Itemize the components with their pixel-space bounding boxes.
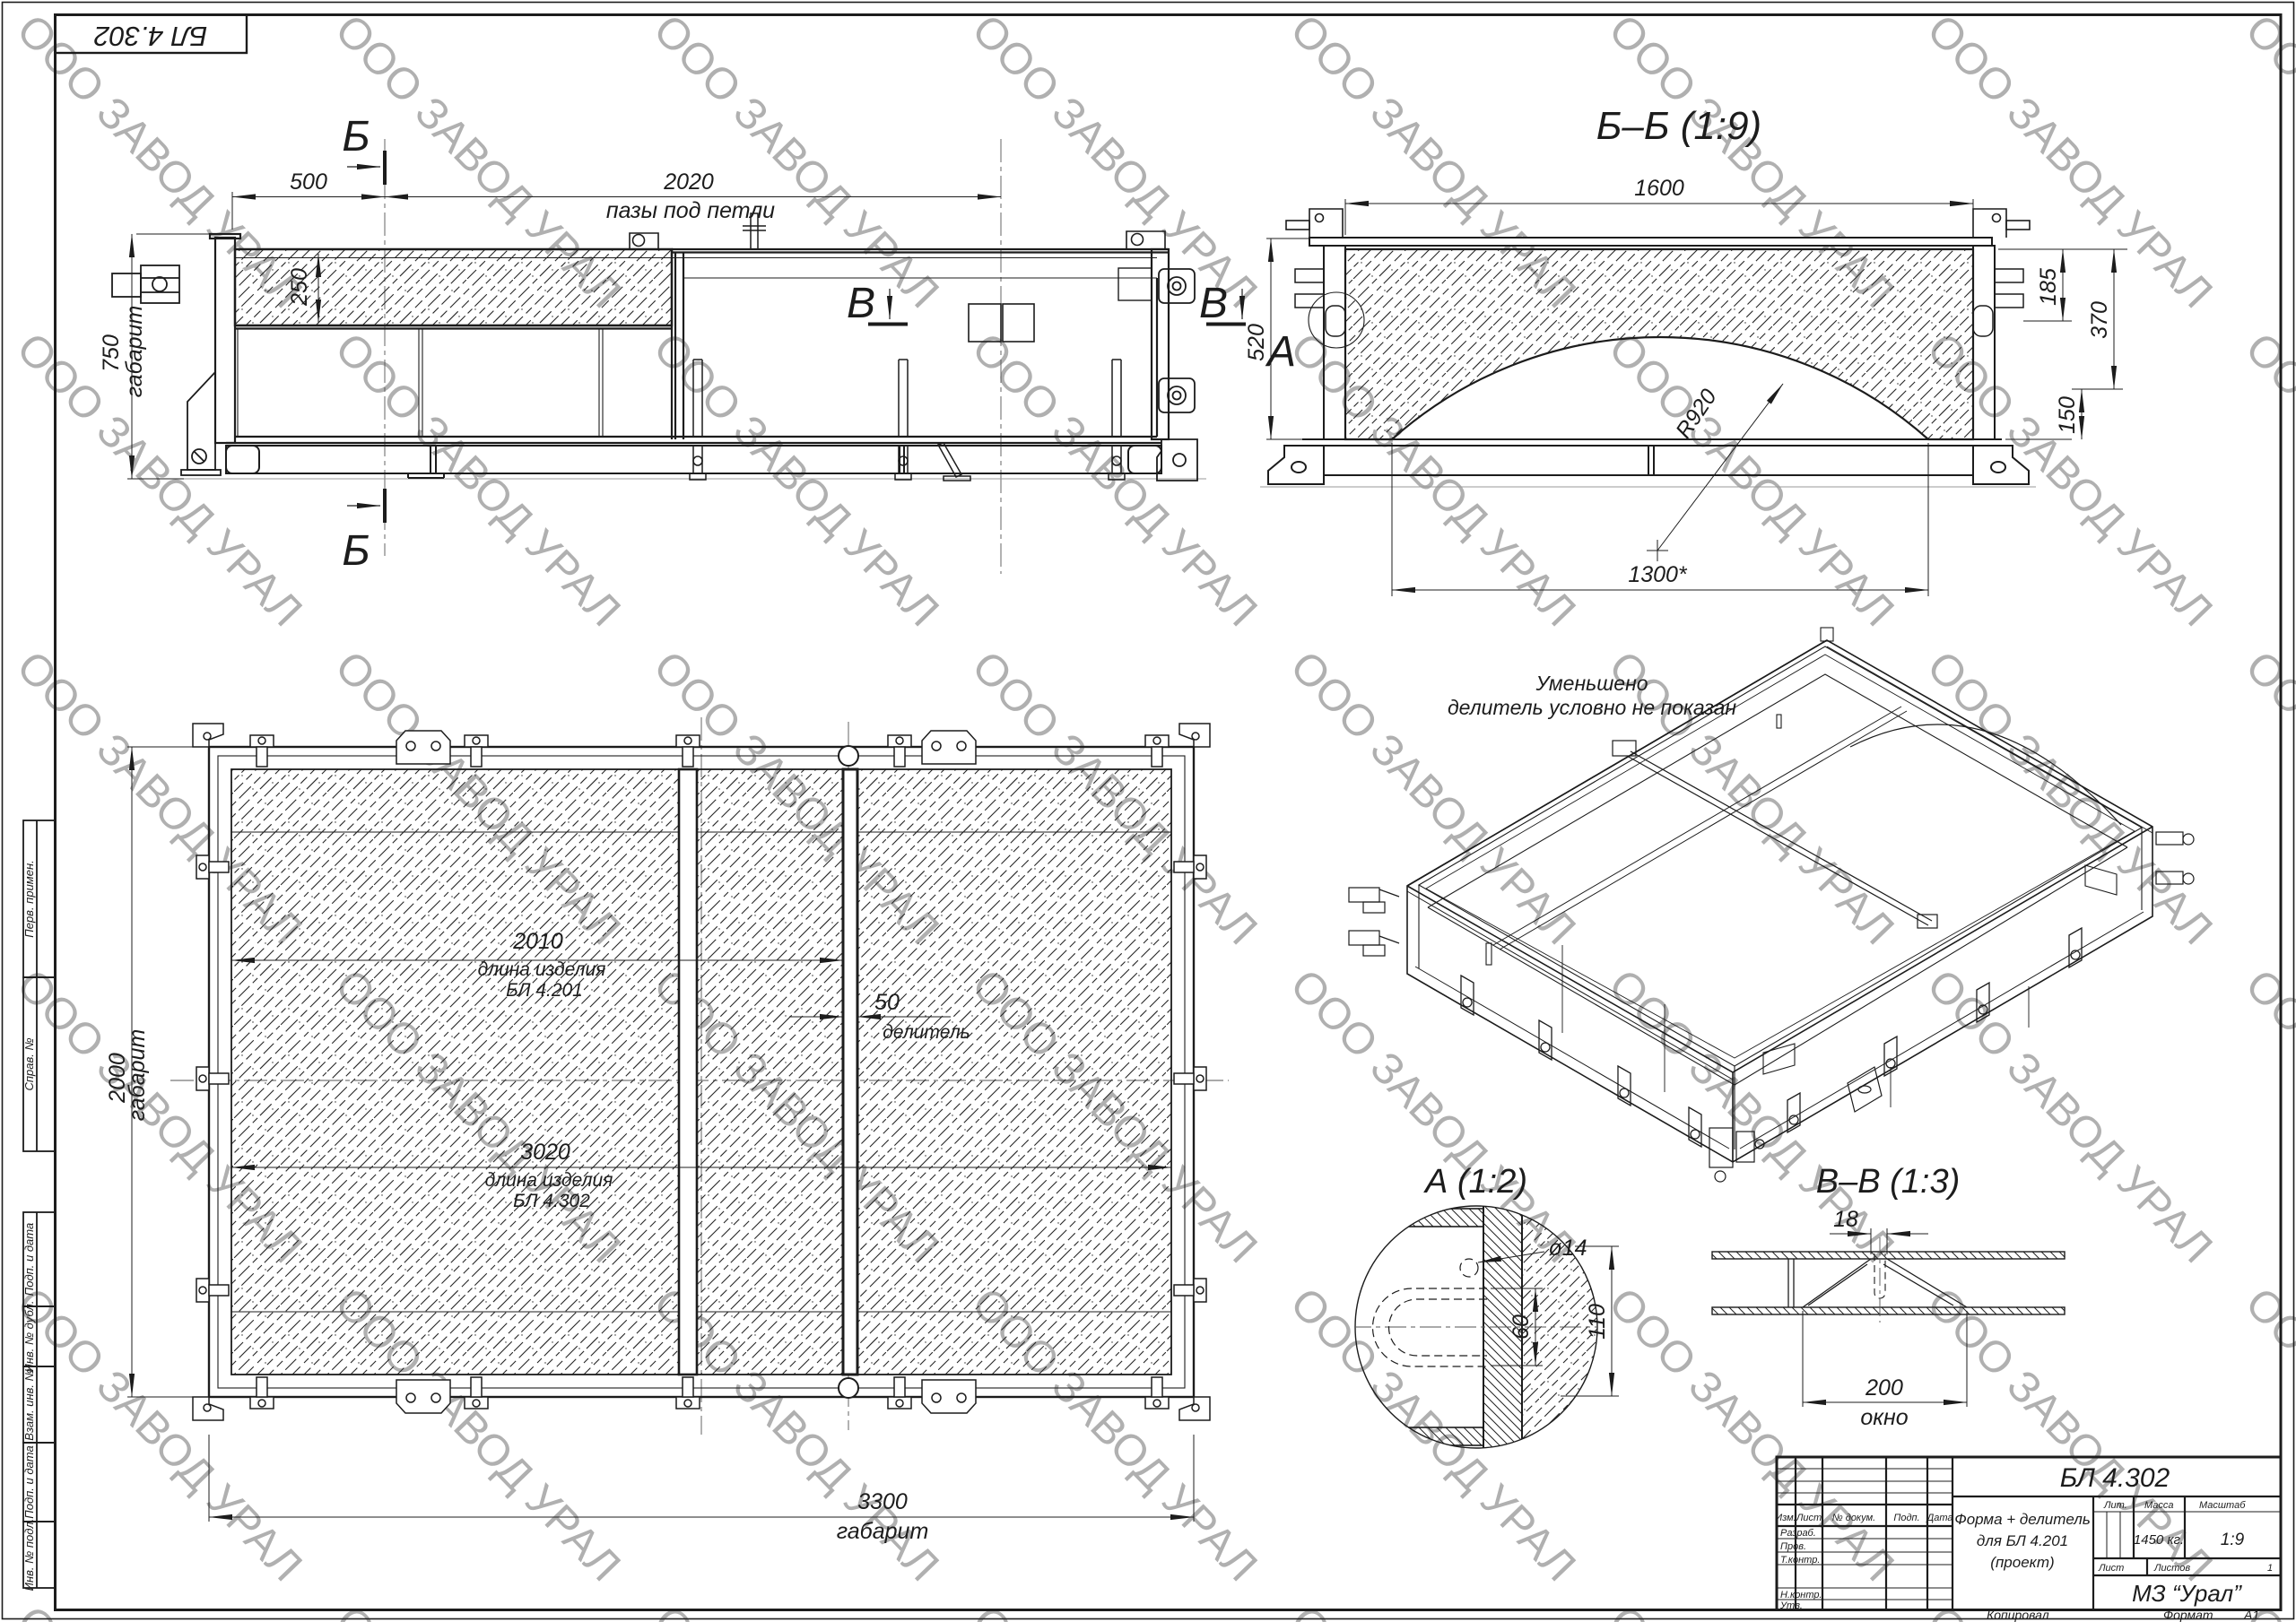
svg-text:3300: 3300 [857,1489,908,1514]
svg-text:В–В (1:3): В–В (1:3) [1816,1163,1961,1201]
svg-text:50: 50 [874,990,900,1015]
svg-text:Листов: Листов [2153,1563,2190,1574]
svg-text:ООО ЗАВОД УРАЛ: ООО ЗАВОД УРАЛ [2236,1279,2296,1591]
svg-text:Формат: Формат [2163,1608,2213,1622]
svg-text:370: 370 [2087,301,2112,339]
svg-text:Масштаб: Масштаб [2199,1500,2246,1511]
svg-text:1:9: 1:9 [2221,1531,2245,1549]
svg-text:габарит: габарит [122,306,147,398]
svg-text:делитель: делитель [883,1022,970,1043]
svg-text:Копировал: Копировал [1987,1608,2049,1622]
svg-text:длина изделия: длина изделия [478,959,606,980]
svg-text:Лит.: Лит. [2103,1500,2127,1511]
svg-text:185: 185 [2036,268,2061,306]
svg-text:БЛ 4.302: БЛ 4.302 [2060,1463,2170,1493]
svg-text:БЛ 4.201: БЛ 4.201 [506,980,583,1001]
svg-text:габарит: габарит [125,1029,150,1122]
svg-text:2020: 2020 [663,169,714,195]
svg-text:В: В [847,280,875,327]
svg-text:2010: 2010 [512,929,563,954]
svg-text:пазы под петли: пазы под петли [606,198,775,223]
svg-text:делитель условно не показан: делитель условно не показан [1448,696,1736,719]
svg-text:1450 кг.: 1450 кг. [2134,1532,2184,1548]
svg-text:ООО ЗАВОД УРАЛ: ООО ЗАВОД УРАЛ [644,5,948,317]
svg-text:1300*: 1300* [1628,562,1688,587]
svg-text:Изм.: Изм. [1775,1513,1796,1523]
svg-text:габарит: габарит [837,1519,929,1544]
svg-text:150: 150 [2055,396,2080,434]
svg-text:750: 750 [99,334,124,372]
svg-text:Уменьшено: Уменьшено [1535,672,1648,695]
svg-text:Справ. №: Справ. № [22,1037,36,1090]
svg-text:ООО ЗАВОД УРАЛ: ООО ЗАВОД УРАЛ [1918,960,2222,1272]
svg-text:Подп. и дата: Подп. и дата [22,1445,36,1518]
svg-text:250: 250 [287,268,312,307]
svg-text:500: 500 [290,169,327,195]
svg-text:БЛ 4.302: БЛ 4.302 [94,21,208,52]
svg-text:ООО ЗАВОД УРАЛ: ООО ЗАВОД УРАЛ [1599,1279,1903,1591]
svg-text:БЛ 4.302: БЛ 4.302 [513,1191,590,1211]
svg-text:№ докум.: № докум. [1832,1513,1875,1523]
svg-text:Пров.: Пров. [1780,1541,1806,1552]
svg-text:1: 1 [2267,1563,2273,1574]
svg-text:ООО ЗАВОД УРАЛ: ООО ЗАВОД УРАЛ [2236,5,2296,317]
svg-text:Инв. № дубл.: Инв. № дубл. [22,1301,36,1373]
svg-text:Н.контр.: Н.контр. [1780,1590,1822,1600]
svg-text:Форма + делитель: Форма + делитель [1954,1511,2091,1528]
svg-text:Б: Б [342,113,370,160]
svg-text:1600: 1600 [1634,176,1684,201]
svg-text:Утв.: Утв. [1779,1600,1803,1611]
svg-text:200: 200 [1865,1375,1903,1401]
svg-text:окно: окно [1860,1405,1908,1430]
svg-text:длина изделия: длина изделия [485,1170,613,1191]
svg-text:ø14: ø14 [1548,1236,1587,1261]
svg-text:3020: 3020 [520,1140,570,1165]
svg-text:А1: А1 [2243,1608,2259,1622]
svg-text:ООО ЗАВОД УРАЛ: ООО ЗАВОД УРАЛ [2236,960,2296,1272]
svg-text:Лист: Лист [1796,1513,1822,1523]
svg-text:Подп.: Подп. [1893,1513,1919,1523]
svg-text:110: 110 [1585,1304,1610,1340]
svg-text:Взам. инв. №: Взам. инв. № [22,1368,36,1440]
svg-text:ООО ЗАВОД УРАЛ: ООО ЗАВОД УРАЛ [326,324,630,636]
svg-text:ООО ЗАВОД УРАЛ: ООО ЗАВОД УРАЛ [1918,642,2222,954]
svg-text:А (1:2): А (1:2) [1423,1163,1527,1201]
svg-text:(проект): (проект) [1990,1554,2054,1571]
svg-text:520: 520 [1244,324,1269,361]
svg-text:Б: Б [342,527,370,575]
svg-text:Б–Б (1:9): Б–Б (1:9) [1596,104,1761,148]
svg-text:Масса: Масса [2144,1500,2174,1511]
svg-text:Инв. № подл.: Инв. № подл. [22,1519,36,1592]
svg-text:Разраб.: Разраб. [1780,1528,1816,1539]
svg-text:ООО ЗАВОД УРАЛ: ООО ЗАВОД УРАЛ [962,5,1266,317]
svg-text:МЗ “Урал”: МЗ “Урал” [2132,1580,2242,1607]
svg-text:ООО ЗАВОД УРАЛ: ООО ЗАВОД УРАЛ [2236,324,2296,636]
svg-text:Лист: Лист [2098,1563,2124,1574]
svg-text:А: А [1265,328,1296,376]
svg-text:ООО ЗАВОД УРАЛ: ООО ЗАВОД УРАЛ [7,324,311,636]
svg-text:60: 60 [1509,1314,1534,1340]
svg-text:Дата: Дата [1925,1513,1952,1523]
svg-text:для БЛ 4.201: для БЛ 4.201 [1977,1532,2068,1549]
svg-text:Подп. и дата: Подп. и дата [22,1223,36,1296]
svg-text:В: В [1199,280,1228,327]
svg-text:Т.контр.: Т.контр. [1780,1555,1820,1566]
svg-text:Перв. примен.: Перв. примен. [22,860,36,937]
svg-text:18: 18 [1833,1207,1858,1232]
svg-text:ООО ЗАВОД УРАЛ: ООО ЗАВОД УРАЛ [2236,642,2296,954]
